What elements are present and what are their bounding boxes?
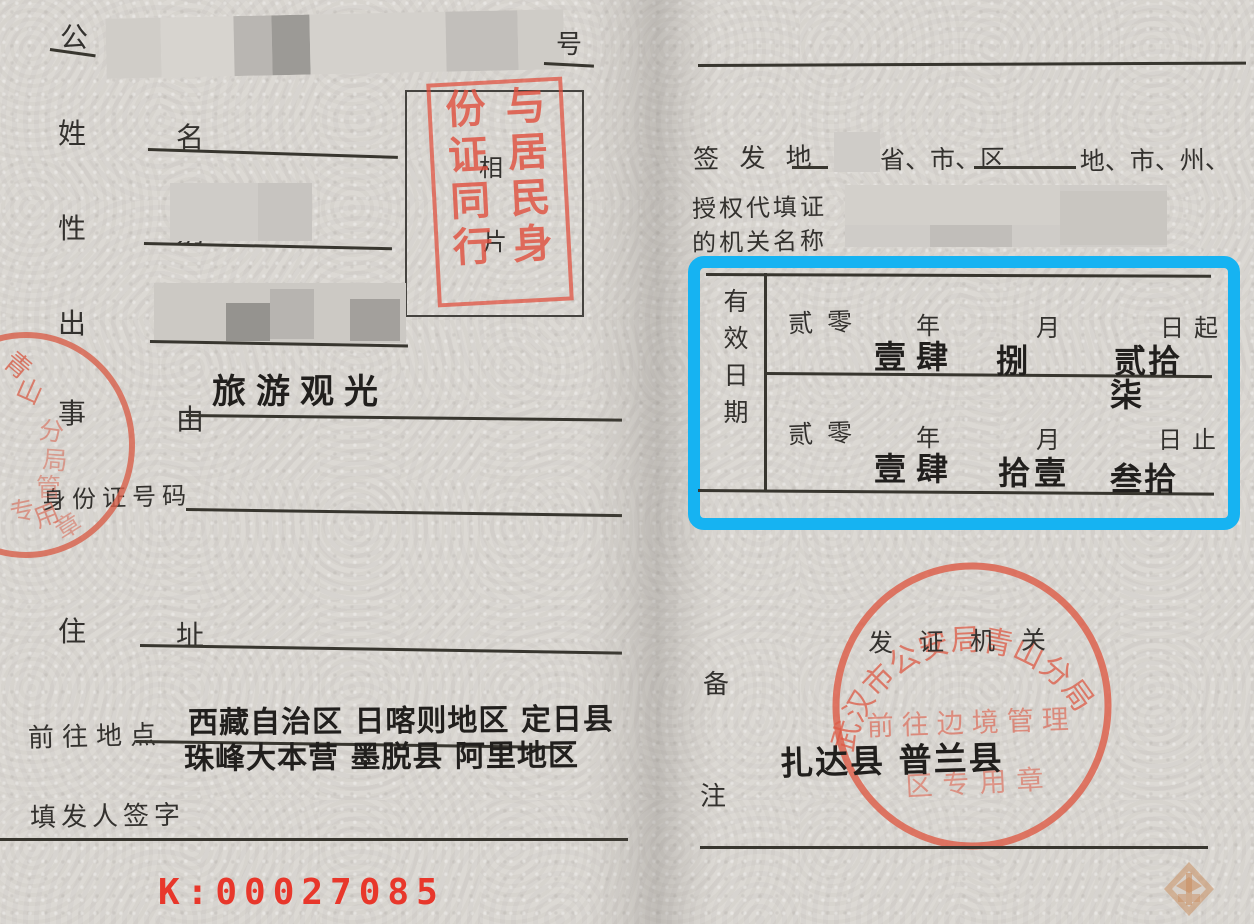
underline-id-number (186, 508, 622, 517)
underline-issue-place (792, 166, 828, 169)
issuing-authority-stamp: 武汉市公安局青山分局 前往边境管理 区专用章 (830, 560, 1115, 852)
validity-start-month-value: 捌 (996, 336, 1028, 382)
agency-label-line1: 授权代填证 (692, 187, 828, 224)
issue-place-label: 签 发 地 (693, 137, 818, 176)
destination-label: 前往地点 (28, 714, 165, 755)
issue-place-suffix-province: 省、市、区 (880, 139, 1005, 176)
redaction-block (105, 9, 564, 79)
underline-issue-place-2 (974, 166, 1076, 169)
redaction-block (845, 185, 1167, 247)
left-page-bottom-rule (0, 838, 628, 841)
validity-label: 有效日期 (716, 288, 752, 473)
underline-address (140, 644, 622, 654)
validity-start-day-value-cont: 柒 (1110, 370, 1142, 416)
remarks-label-first: 备 (703, 664, 729, 701)
edge-stamp-char: 管 (36, 473, 61, 502)
name-label-first: 姓 (58, 112, 86, 152)
validity-end-year-value: 壹肆 (874, 444, 958, 490)
permit-document-scan: 公 号 姓 名 相 片 与居民身份证同行 性 别 出 生 事 由 旅游观光 (0, 0, 1254, 924)
right-page-bottom-rule (700, 846, 1208, 849)
reason-value: 旅游观光 (212, 364, 388, 413)
edge-stamp-char: 局 (42, 445, 69, 476)
issuing-authority-label: 发 证 机 关 (868, 620, 1055, 659)
edge-stamp: 青 山 分 局 管 专 用 章 (0, 330, 150, 566)
photo-stamp-text: 与居民身份证同行 (431, 83, 562, 293)
validity-end-day-value: 叁拾 (1110, 454, 1178, 500)
destination-value-line2: 珠峰大本营 墨脱县 阿里地区 (184, 730, 579, 777)
edge-stamp-char: 分 (37, 415, 66, 447)
address-label-first: 住 (58, 610, 86, 650)
remarks-value: 扎达县 普兰县 (779, 731, 1004, 785)
redaction-block (170, 183, 312, 241)
validity-end-month-value: 拾壹 (998, 448, 1070, 494)
validity-start-century: 贰零 (787, 302, 866, 341)
underline-reason (186, 414, 622, 421)
remarks-label-second: 注 (700, 776, 726, 813)
corner-emblem-icon (1162, 860, 1216, 918)
validity-end-century: 贰零 (787, 413, 866, 452)
agency-label-line2: 的机关名称 (692, 221, 828, 258)
validity-end-day-suffix: 日止 (1158, 420, 1226, 455)
photo-stamp: 与居民身份证同行 (426, 77, 574, 308)
sex-label-first: 性 (58, 207, 86, 247)
validity-start-year-value: 壹肆 (874, 332, 958, 378)
address-label-second: 址 (176, 614, 204, 654)
right-page-top-rule (698, 62, 1246, 67)
redaction-block (834, 132, 880, 172)
serial-number: K:00027085 (158, 872, 445, 913)
validity-table-divider (764, 273, 767, 491)
issuer-signature-label: 填发人签字 (30, 795, 186, 835)
reason-label-second: 由 (176, 398, 204, 438)
redaction-block (154, 283, 406, 343)
validity-start-month-suffix: 月 (1036, 308, 1060, 343)
number-char: 号 (556, 24, 582, 61)
